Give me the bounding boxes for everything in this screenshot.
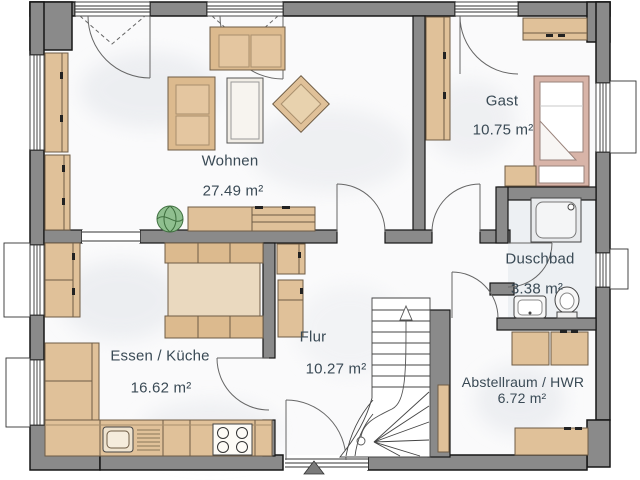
sideboard [188,206,315,231]
wall-corner [587,420,610,467]
window [455,2,518,16]
wall [497,318,596,330]
room-label-flur: Flur [300,330,327,345]
wall [150,2,207,16]
dining-set [165,243,263,338]
room-label-duschbad: Duschbad [505,252,574,267]
window [75,2,150,16]
shower [531,198,581,242]
room-area-wohnen: 27.49 m² [203,184,264,199]
hall-cabinet [277,244,305,274]
room-area-duschbad: 3.38 m² [511,282,563,297]
appliance-cabinet [515,427,588,455]
room-label-gast: Gast [486,94,518,109]
open-passage [82,230,140,243]
hallway-furniture [277,244,305,337]
window [596,249,628,289]
washbasin [514,296,546,318]
nightstand [505,166,536,186]
wall [100,455,283,470]
window [30,55,44,150]
wall [596,2,610,83]
plant [157,206,183,232]
wall [263,243,275,358]
wall [283,2,455,16]
wall [385,230,432,243]
sofa [168,77,215,150]
room-label-wohnen: Wohnen [202,154,259,169]
wardrobe [523,18,587,40]
tall-cabinet [426,17,450,140]
floor-plan: Wohnen 27.49 m² Gast 10.75 m² Duschbad 3… [0,0,640,480]
floor-plan-drawing [0,0,640,480]
wall [596,287,610,420]
tall-cabinet [45,243,80,317]
kitchen-sink [103,427,133,452]
window [207,2,283,16]
room-label-abstellraum: Abstellraum / HWR [462,375,584,389]
wall [413,16,425,232]
wall-cabinet [45,155,70,230]
stair-wall-panel [438,385,449,452]
wall [496,187,508,243]
bed-foot-bench [539,166,584,183]
room-label-essen-kueche: Essen / Küche [110,349,209,364]
room-area-gast: 10.75 m² [473,123,534,138]
window [4,243,44,317]
window [596,81,636,153]
wall [44,230,82,243]
room-area-flur: 10.27 m² [306,362,367,377]
room-area-essen-kueche: 16.62 m² [131,381,192,396]
room-area-abstellraum: 6.72 m² [498,391,547,405]
bed [534,76,589,186]
coffee-table [227,78,263,143]
sofa [210,27,285,70]
stove [213,424,252,455]
wall [30,315,44,360]
wall-cabinet [45,53,68,152]
wall [30,150,44,245]
wall [30,2,44,55]
wall [596,152,610,253]
window [6,358,44,427]
